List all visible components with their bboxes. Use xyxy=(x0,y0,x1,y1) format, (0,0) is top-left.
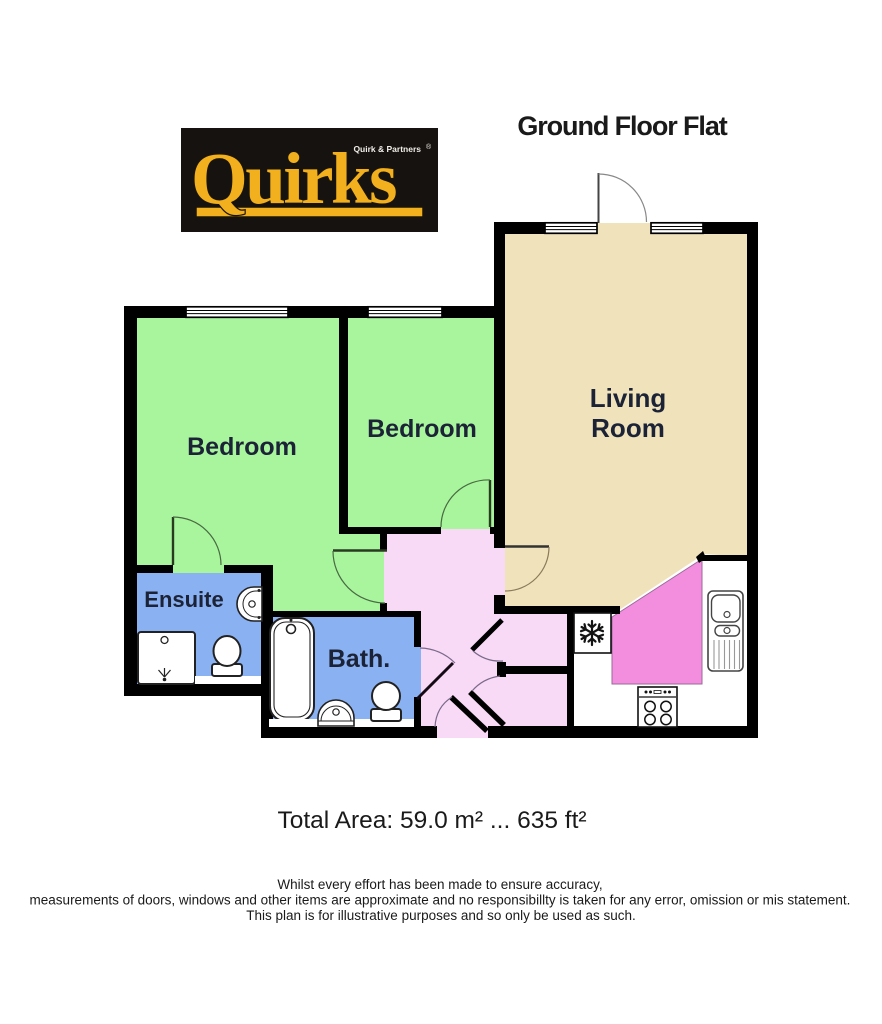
svg-text:Living: Living xyxy=(590,383,667,413)
svg-text:measurements of doors, windows: measurements of doors, windows and other… xyxy=(30,893,851,908)
svg-text:Bath.: Bath. xyxy=(328,645,391,673)
svg-text:®: ® xyxy=(426,143,432,151)
svg-text:Room: Room xyxy=(591,413,665,443)
svg-text:Bedroom: Bedroom xyxy=(367,415,477,443)
svg-text:Whilst every effort has been m: Whilst every effort has been made to ens… xyxy=(277,877,602,892)
svg-text:Quirks: Quirks xyxy=(191,138,396,219)
svg-text:This plan is for illustrative: This plan is for illustrative purposes a… xyxy=(246,908,635,923)
svg-text:Ensuite: Ensuite xyxy=(144,587,223,612)
svg-text:Ground Floor Flat: Ground Floor Flat xyxy=(517,111,727,141)
svg-text:Total Area: 59.0 m² ... 635 ft: Total Area: 59.0 m² ... 635 ft² xyxy=(277,807,586,834)
svg-text:Bedroom: Bedroom xyxy=(187,433,297,461)
